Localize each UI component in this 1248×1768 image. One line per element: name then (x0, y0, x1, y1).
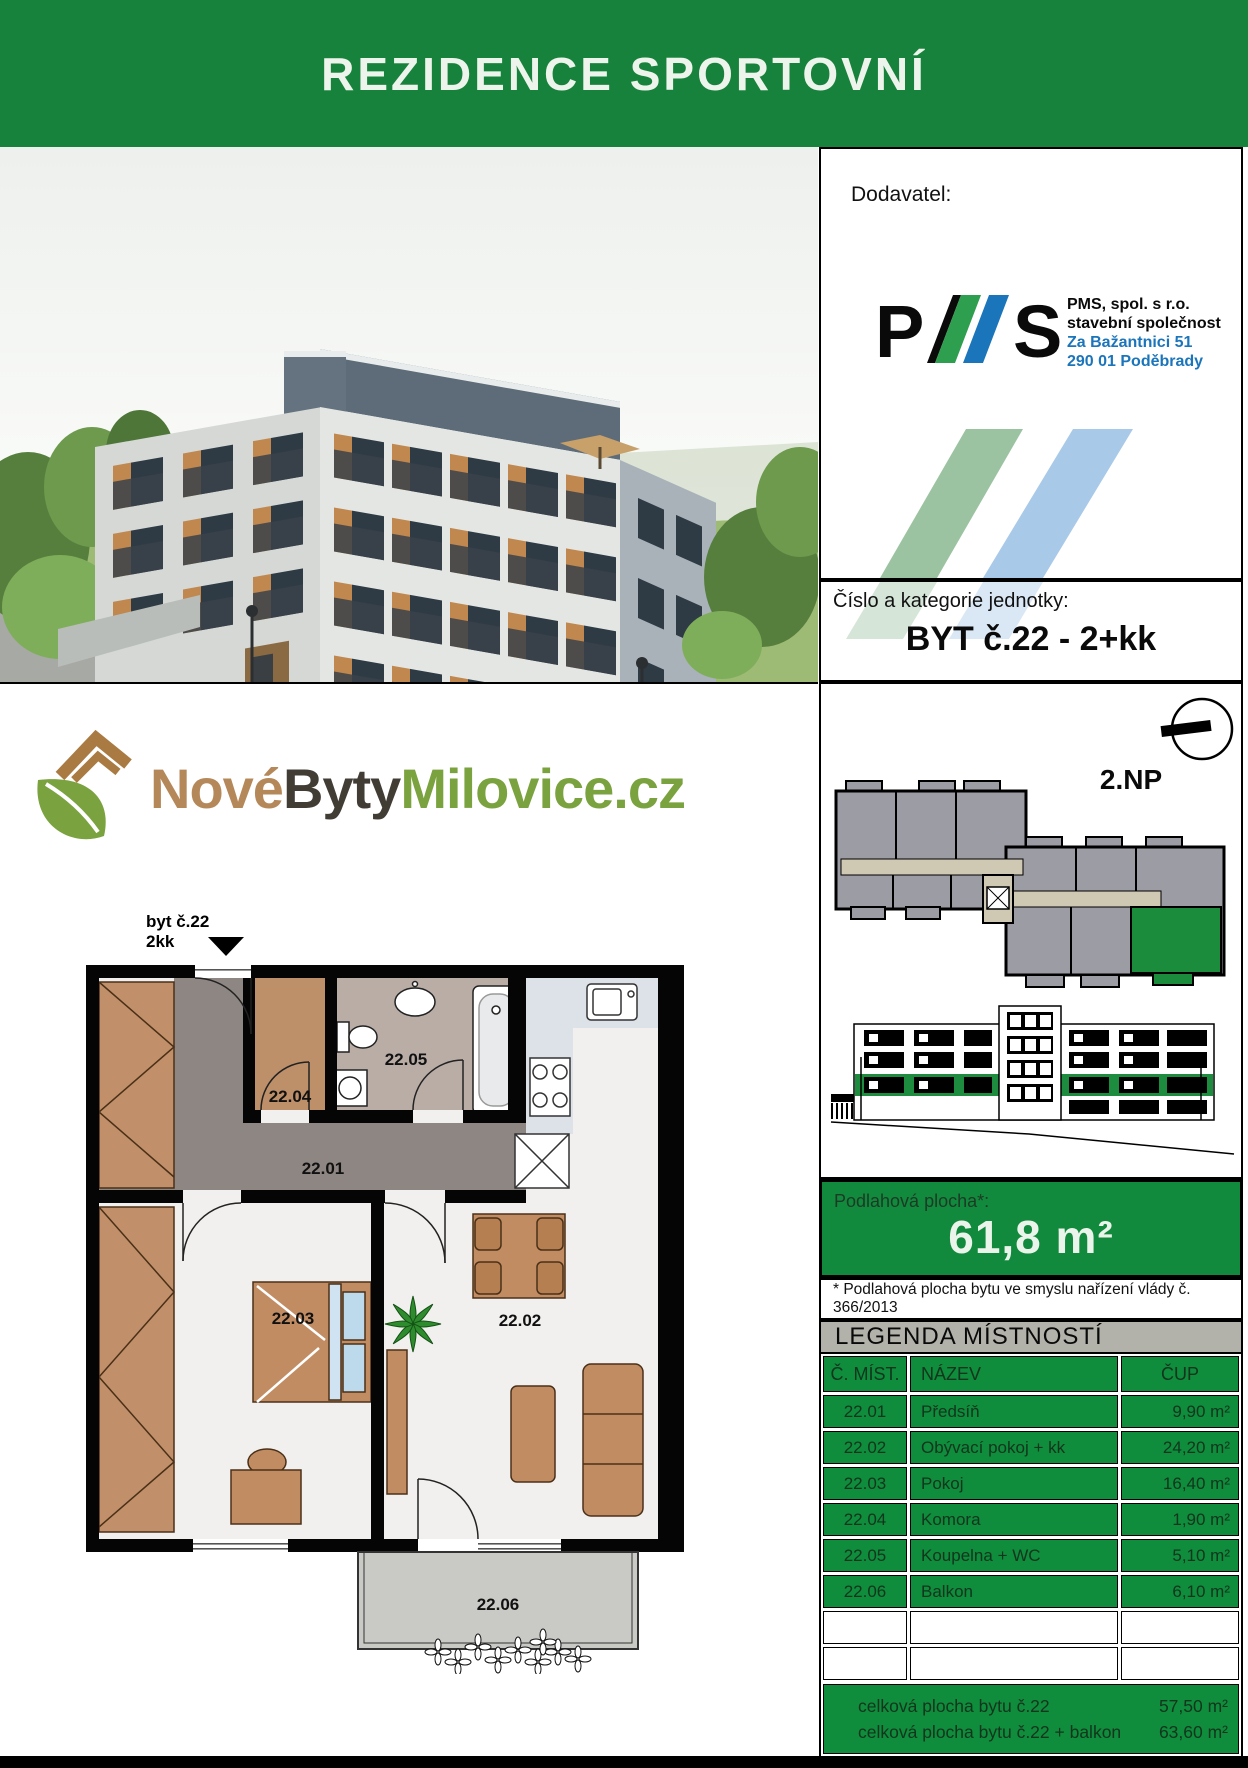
plan-unit-number: byt č.22 (146, 912, 209, 932)
footnote-text: * Podlahová plocha bytu ve smyslu naříze… (833, 1281, 1241, 1317)
floor-area-box: Podlahová plocha*: 61,8 m² (819, 1179, 1243, 1278)
supplier-city: 290 01 Poděbrady (1067, 352, 1221, 371)
room-area: 6,10 m² (1121, 1575, 1239, 1608)
brand-website: NovéBytyMilovice.cz (150, 756, 685, 821)
room-label-2206: 22.06 (477, 1595, 520, 1614)
supplier-details: PMS, spol. s r.o. stavební společnost Za… (1067, 295, 1221, 371)
total-value: 63,60 m² (1159, 1722, 1228, 1743)
page-header: REZIDENCE SPORTOVNÍ (0, 0, 1248, 147)
totals-block: celková plocha bytu č.22 57,50 m² celkov… (823, 1684, 1239, 1754)
room-area: 24,20 m² (1121, 1431, 1239, 1464)
floor-plan-drawing: 22.01 22.02 22.03 22.04 22.05 22.06 (83, 962, 693, 1674)
room-name: Pokoj (910, 1467, 1118, 1500)
table-row: 22.04 Komora 1,90 m² (823, 1503, 1239, 1536)
room-number: 22.02 (823, 1431, 907, 1464)
room-number: 22.05 (823, 1539, 907, 1572)
legend-title: LEGENDA MÍSTNOSTÍ (835, 1323, 1103, 1351)
pms-letter-s: S (1013, 290, 1062, 369)
brand-word-byty: Byty (283, 757, 400, 820)
floor-area-value: 61,8 m² (822, 1210, 1240, 1264)
floor-plan: 22.01 22.02 22.03 22.04 22.05 22.06 (83, 962, 693, 1674)
brochure-page: REZIDENCE SPORTOVNÍ (0, 0, 1248, 1768)
floor-overview-drawing: 2.NP (821, 684, 1241, 1177)
brand-word-milovice: Milovice (400, 757, 613, 820)
col-header-name: NÁZEV (910, 1356, 1118, 1392)
room-area: 9,90 m² (1121, 1395, 1239, 1428)
total-row: celková plocha bytu č.22 + balkon 63,60 … (824, 1722, 1238, 1743)
floor-area-label: Podlahová plocha*: (834, 1191, 989, 1212)
building-render-photo (0, 147, 818, 684)
floor-label: 2.NP (1100, 764, 1162, 795)
room-label-2203: 22.03 (272, 1309, 315, 1328)
unit-box: Číslo a kategorie jednotky: BYT č.22 - 2… (819, 580, 1243, 682)
total-label: celková plocha bytu č.22 (858, 1696, 1050, 1717)
unit-value: BYT č.22 - 2+kk (821, 620, 1241, 659)
wardrobe (99, 982, 174, 1532)
supplier-street: Za Bažantnici 51 (1067, 333, 1221, 352)
room-label-2205: 22.05 (385, 1050, 428, 1069)
room-label-2204: 22.04 (269, 1087, 312, 1106)
room-name: Komora (910, 1503, 1118, 1536)
supplier-label: Dodavatel: (851, 183, 951, 207)
room-area: 5,10 m² (1121, 1539, 1239, 1572)
empty-row (823, 1611, 1239, 1644)
empty-row (823, 1647, 1239, 1680)
room-number: 22.04 (823, 1503, 907, 1536)
building-render-illustration (0, 147, 818, 682)
room-number: 22.06 (823, 1575, 907, 1608)
table-row: 22.03 Pokoj 16,40 m² (823, 1467, 1239, 1500)
north-compass-icon (1161, 699, 1232, 759)
unit-label: Číslo a kategorie jednotky: (833, 590, 1069, 613)
pms-logo: P S (875, 289, 1075, 369)
legend-table: Č. MÍST. NÁZEV ČUP 22.01 Předsíň 9,90 m²… (819, 1354, 1243, 1758)
supplier-company-type: stavební společnost (1067, 314, 1221, 333)
leaf-house-icon (26, 716, 144, 846)
total-row: celková plocha bytu č.22 57,50 m² (824, 1696, 1238, 1717)
table-row: 22.06 Balkon 6,10 m² (823, 1575, 1239, 1608)
room-area: 1,90 m² (1121, 1503, 1239, 1536)
room-name: Obývací pokoj + kk (910, 1431, 1118, 1464)
legend-title-bar: LEGENDA MÍSTNOSTÍ (819, 1320, 1243, 1354)
total-value: 57,50 m² (1159, 1696, 1228, 1717)
plan-unit-type: 2kk (146, 932, 209, 952)
room-number: 22.03 (823, 1467, 907, 1500)
floor-overview-box: 2.NP (819, 682, 1243, 1179)
supplier-box: Dodavatel: P S PMS, spol. s r.o. stavebn… (819, 147, 1243, 580)
room-area: 16,40 m² (1121, 1467, 1239, 1500)
pms-letter-p: P (875, 290, 924, 369)
footnote-box: * Podlahová plocha bytu ve smyslu naříze… (819, 1278, 1243, 1320)
page-bottom-border (0, 1756, 1248, 1768)
table-row: 22.02 Obývací pokoj + kk 24,20 m² (823, 1431, 1239, 1464)
table-row: 22.01 Předsíň 9,90 m² (823, 1395, 1239, 1428)
room-name: Koupelna + WC (910, 1539, 1118, 1572)
total-label: celková plocha bytu č.22 + balkon (858, 1722, 1121, 1743)
room-number: 22.01 (823, 1395, 907, 1428)
brand-word-nove: Nové (150, 757, 283, 820)
entrance-arrow-icon (208, 937, 244, 956)
page-title: REZIDENCE SPORTOVNÍ (321, 47, 927, 101)
room-label-2201: 22.01 (302, 1159, 345, 1178)
key-plan (836, 781, 1224, 987)
building-elevation (831, 1006, 1234, 1154)
plant-icon (385, 1296, 441, 1352)
room-name: Balkon (910, 1575, 1118, 1608)
room-label-2202: 22.02 (499, 1311, 542, 1330)
legend-header-row: Č. MÍST. NÁZEV ČUP (823, 1356, 1239, 1392)
plan-unit-label: byt č.22 2kk (146, 912, 209, 952)
supplier-company-name: PMS, spol. s r.o. (1067, 295, 1221, 314)
table-row: 22.05 Koupelna + WC 5,10 m² (823, 1539, 1239, 1572)
col-header-number: Č. MÍST. (823, 1356, 907, 1392)
col-header-area: ČUP (1121, 1356, 1239, 1392)
brand-word-cz: .cz (613, 757, 685, 820)
brand-logo: NovéBytyMilovice.cz (26, 716, 685, 846)
room-name: Předsíň (910, 1395, 1118, 1428)
highlighted-unit (1131, 907, 1221, 973)
